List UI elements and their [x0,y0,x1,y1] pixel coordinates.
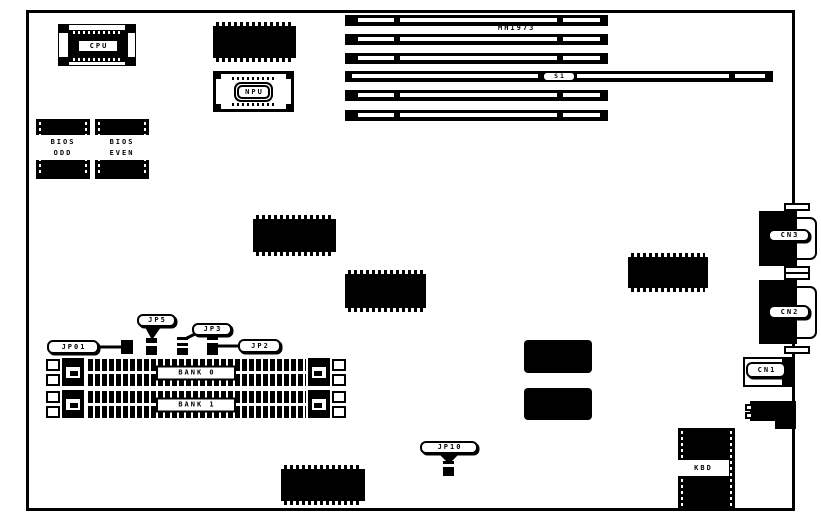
ic-chip [345,274,426,308]
kbd-label: KBD [694,463,713,474]
ic-chip [524,340,592,373]
jp5-label: JP5 [137,314,176,327]
simm-end-contact [332,406,346,418]
ic-chip [628,257,708,288]
bank1-label: BANK 1 [156,397,236,412]
s1-slot-label: S1 [543,72,575,81]
bank0-label: BANK 0 [156,365,236,380]
cn2-mount-tab [784,272,810,280]
npu-corner-mark [286,104,291,109]
bios-odd-chip: BIOS ODD [36,119,90,179]
bios-even-chip: BIOS EVEN [95,119,149,179]
simm-end-contact [46,391,60,403]
npu-corner-mark [216,104,221,109]
slot-groove [735,74,765,78]
din-pin [745,412,753,419]
jp01-label: JP01 [47,340,99,354]
simm-bank-1: BANK 1 [46,390,346,419]
simm-end-contact [46,374,60,386]
slot-groove [400,93,557,97]
slot-groove [563,18,600,22]
npu-pin-row [232,77,275,80]
npu-corner-mark [286,74,291,79]
simm-latch [308,358,330,386]
slot-groove [358,113,394,117]
ic-chip [281,469,365,501]
simm-latch [308,390,330,418]
expansion-slot-5 [345,90,608,101]
simm-end-contact [332,391,346,403]
din-pin [745,404,753,411]
jp2-jumper [207,337,218,355]
slot-groove [358,93,394,97]
simm-end-contact [46,359,60,371]
ic-chip [524,388,592,420]
slot-groove [400,113,557,117]
jp5-jumper [146,338,157,355]
cn2-label: CN2 [768,305,810,319]
slot-groove [563,37,600,41]
jp3-label: JP3 [192,323,232,336]
kbd-chip: KBD [678,428,735,510]
ic-chip [253,219,336,252]
simm-latch [62,390,84,418]
expansion-slot-1 [345,15,608,26]
slot-groove [358,37,394,41]
board-model-label: MH1973 [498,25,535,32]
motherboard-diagram: CPU NPU BIOS ODD BIOS EVEN MH1973 [0,0,821,520]
cn1-label: CN1 [746,362,786,378]
simm-end-contact [332,374,346,386]
npu-corner-mark [216,74,221,79]
slot-groove [577,74,729,78]
keyboard-din-port-step [775,420,796,429]
expansion-slot-3 [345,53,608,64]
simm-end-contact [46,406,60,418]
kbd-label-band: KBD [678,460,729,476]
simm-latch [62,358,84,386]
slot-groove [563,113,600,117]
slot-groove [358,18,394,22]
jp10-jumper [443,461,454,476]
keyboard-din-port [750,401,796,421]
cn2-mount-tab [784,346,810,354]
npu-socket: NPU [213,71,294,112]
expansion-slot-s1: S1 [345,71,773,82]
slot-groove [400,37,557,41]
slot-groove [563,93,600,97]
npu-label-ring: NPU [234,82,273,102]
cn3-mount-tab [784,203,810,211]
expansion-slot-6 [345,110,608,121]
bios-even-label-band: BIOS EVEN [95,135,149,160]
cpu-socket: CPU [58,24,136,66]
cpu-label: CPU [78,40,118,52]
bios-odd-label-band: BIOS ODD [36,135,90,160]
slot-groove [400,18,557,22]
jp3-jumper [177,337,188,355]
simm-end-contact [332,359,346,371]
slot-groove [400,56,557,60]
jp10-label: JP10 [420,441,478,454]
slot-groove [352,74,538,78]
npu-pin-row [232,103,275,106]
ic-chip [213,26,296,58]
slot-groove [358,56,394,60]
slot-groove [563,56,600,60]
bios-odd-label-line2: ODD [54,148,73,159]
simm-bank-0: BANK 0 [46,358,346,387]
bios-even-label-line1: BIOS [110,137,135,148]
npu-label: NPU [237,85,270,99]
jp01-jumper [121,340,133,354]
bios-even-label-line2: EVEN [110,148,135,159]
jp2-label: JP2 [238,339,281,353]
cn3-label: CN3 [768,229,810,242]
bios-odd-label-line1: BIOS [51,137,76,148]
expansion-slot-2 [345,34,608,45]
